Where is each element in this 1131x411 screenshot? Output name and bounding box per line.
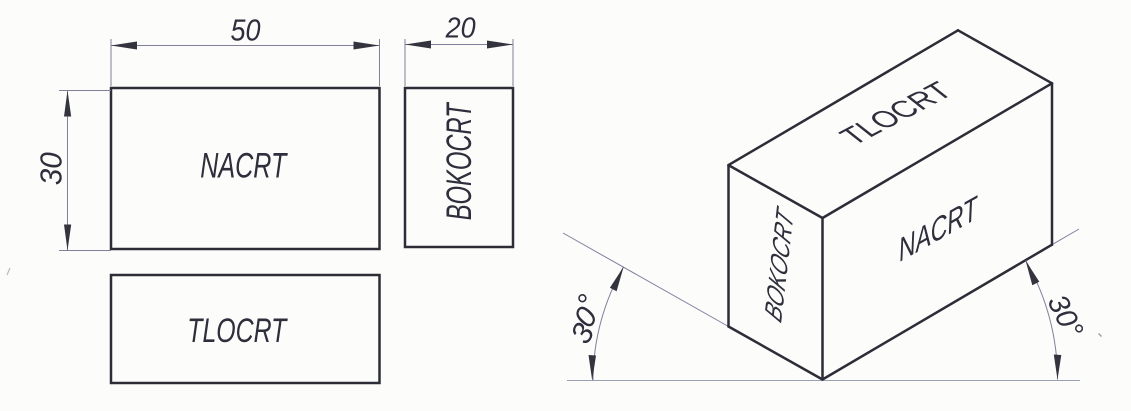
svg-text:30: 30 [34, 152, 69, 185]
svg-text:BOKOCRT: BOKOCRT [440, 102, 479, 221]
svg-text:50: 50 [231, 13, 261, 48]
svg-text:NACRT: NACRT [200, 147, 288, 186]
svg-text:20: 20 [445, 13, 476, 45]
svg-text:TLOCRT: TLOCRT [187, 312, 288, 350]
